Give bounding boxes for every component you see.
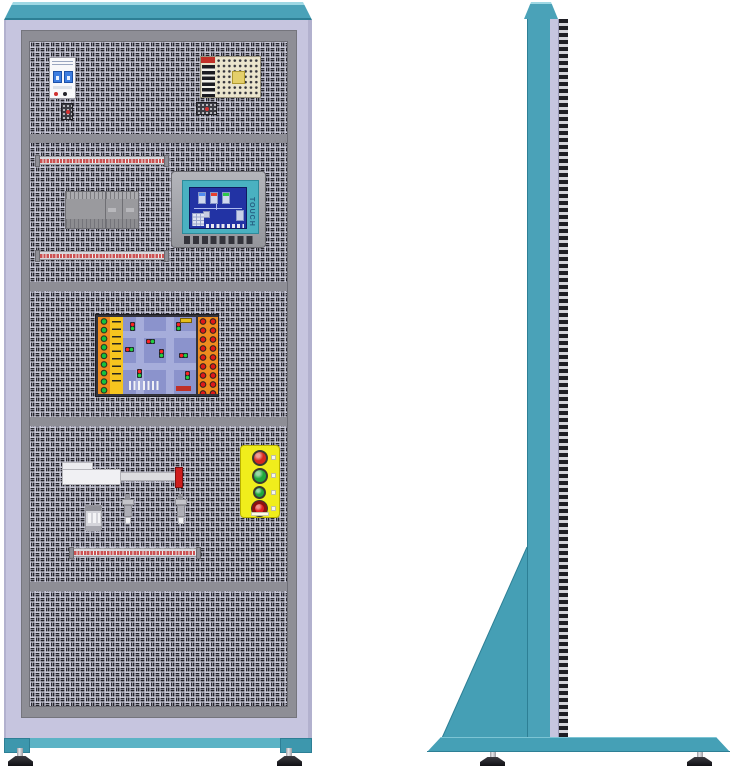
side-view	[420, 0, 730, 766]
leveling-foot	[0, 0, 730, 766]
illustration-canvas: TOUCH	[0, 0, 730, 766]
foot-pad	[687, 757, 712, 766]
